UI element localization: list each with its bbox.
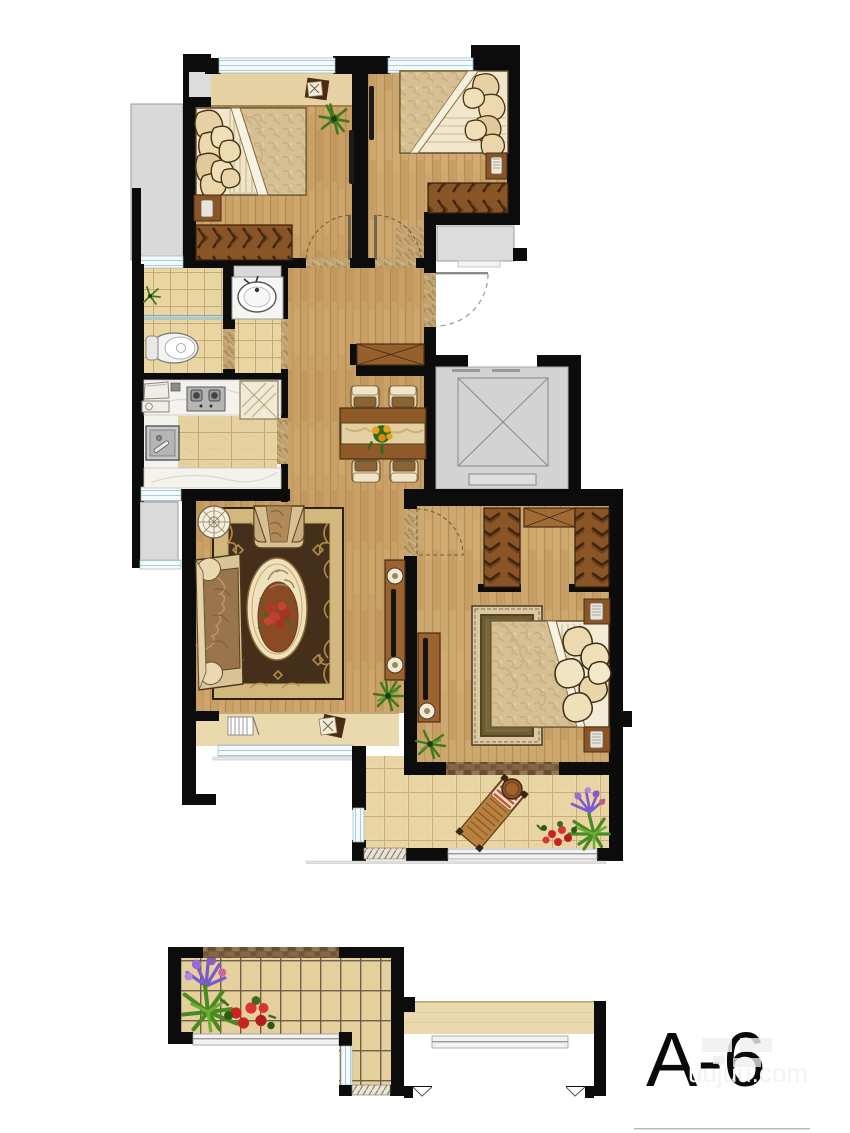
svg-text:uujuu.com: uujuu.com [688,1058,808,1088]
